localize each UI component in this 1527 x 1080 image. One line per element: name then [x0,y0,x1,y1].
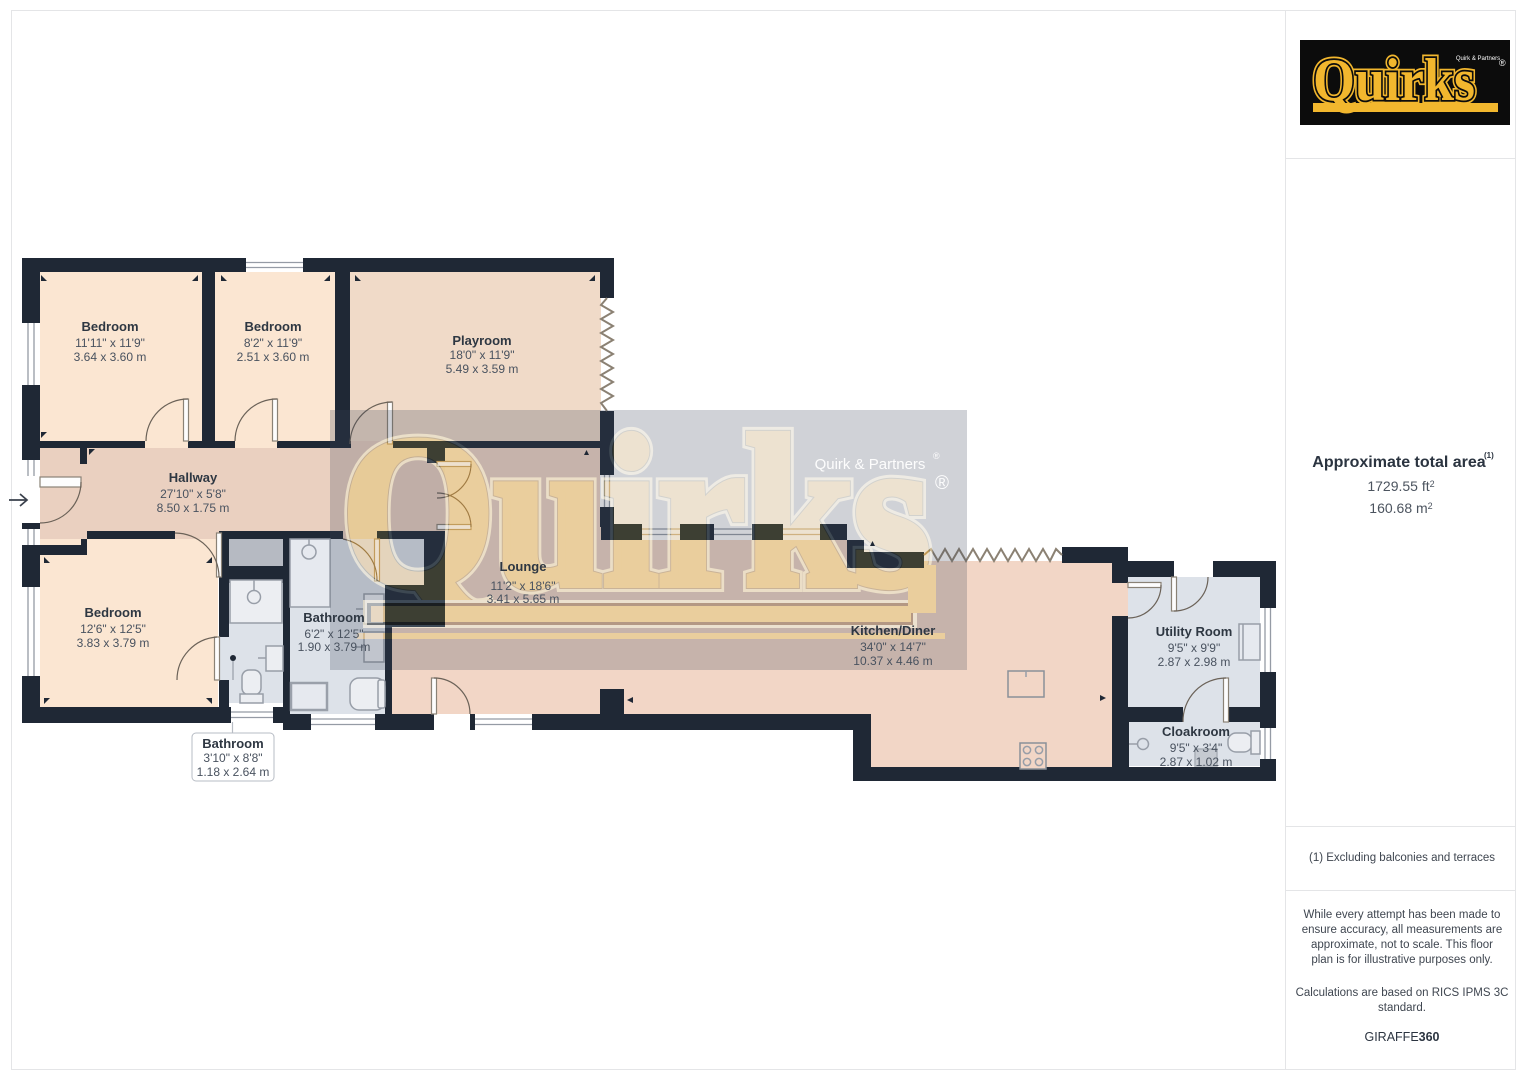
svg-text:6'2" x 12'5": 6'2" x 12'5" [304,627,363,641]
svg-text:Calculations are based on RICS: Calculations are based on RICS IPMS 3C [1296,987,1509,999]
svg-text:Bedroom: Bedroom [81,319,138,334]
svg-text:8.50 x 1.75 m: 8.50 x 1.75 m [157,501,230,515]
svg-text:(1): (1) [1484,451,1494,460]
svg-text:1.18 x 2.64 m: 1.18 x 2.64 m [197,765,270,779]
svg-text:Kitchen/Diner: Kitchen/Diner [851,623,936,638]
svg-text:34'0" x 14'7": 34'0" x 14'7" [860,640,926,654]
svg-text:2.51 x 3.60 m: 2.51 x 3.60 m [237,350,310,364]
svg-text:Utility Room: Utility Room [1156,624,1233,639]
svg-text:approximate, not to scale. Thi: approximate, not to scale. This floor [1311,939,1493,951]
svg-text:11'2" x 18'6": 11'2" x 18'6" [491,579,556,593]
svg-text:GIRAFFE360: GIRAFFE360 [1364,1030,1439,1044]
svg-text:9'5" x 9'9": 9'5" x 9'9" [1168,641,1220,655]
svg-text:Cloakroom: Cloakroom [1162,724,1230,739]
svg-text:Playroom: Playroom [452,333,511,348]
svg-text:Approximate total area: Approximate total area [1312,454,1485,471]
svg-text:3.41 x 5.65 m: 3.41 x 5.65 m [487,592,560,606]
svg-text:®: ® [1499,58,1506,68]
svg-text:ensure accuracy, all measureme: ensure accuracy, all measurements are [1302,924,1503,936]
svg-text:8'2" x 11'9": 8'2" x 11'9" [244,336,302,350]
svg-text:standard.: standard. [1378,1002,1426,1014]
svg-text:160.68 m2: 160.68 m2 [1369,500,1432,516]
svg-text:plan is for illustrative purpo: plan is for illustrative purposes only. [1311,954,1492,966]
svg-text:®: ® [935,473,949,494]
svg-text:11'11" x 11'9": 11'11" x 11'9" [75,336,145,350]
svg-text:12'6" x 12'5": 12'6" x 12'5" [80,622,146,636]
svg-text:18'0" x 11'9": 18'0" x 11'9" [450,348,515,362]
svg-text:9'5" x 3'4": 9'5" x 3'4" [1170,741,1222,755]
svg-text:Lounge: Lounge [500,559,547,574]
svg-text:3.64 x 3.60 m: 3.64 x 3.60 m [74,350,147,364]
svg-text:2.87 x 1.02 m: 2.87 x 1.02 m [1160,755,1233,769]
svg-text:3'10" x 8'8": 3'10" x 8'8" [203,751,262,765]
svg-text:®: ® [933,451,940,461]
svg-text:Quirk & Partners: Quirk & Partners [1456,56,1500,62]
svg-text:3.83 x 3.79 m: 3.83 x 3.79 m [77,636,150,650]
svg-text:10.37 x 4.46 m: 10.37 x 4.46 m [853,654,932,668]
svg-text:2.87 x 2.98 m: 2.87 x 2.98 m [1158,655,1231,669]
svg-text:Hallway: Hallway [169,470,218,485]
svg-text:Bathroom: Bathroom [303,610,364,625]
svg-text:27'10" x 5'8": 27'10" x 5'8" [160,487,226,501]
svg-text:1729.55 ft2: 1729.55 ft2 [1367,478,1434,494]
svg-text:1.90 x 3.79 m: 1.90 x 3.79 m [298,640,371,654]
svg-text:Quirks: Quirks [342,392,930,631]
svg-text:Bathroom: Bathroom [202,736,263,751]
svg-text:(1) Excluding balconies and te: (1) Excluding balconies and terraces [1309,852,1495,864]
svg-text:5.49 x 3.59 m: 5.49 x 3.59 m [446,362,519,376]
svg-text:Quirk & Partners: Quirk & Partners [815,456,926,473]
svg-text:Bedroom: Bedroom [84,605,141,620]
svg-text:Bedroom: Bedroom [244,319,301,334]
svg-text:While every attempt has been m: While every attempt has been made to [1304,909,1501,921]
